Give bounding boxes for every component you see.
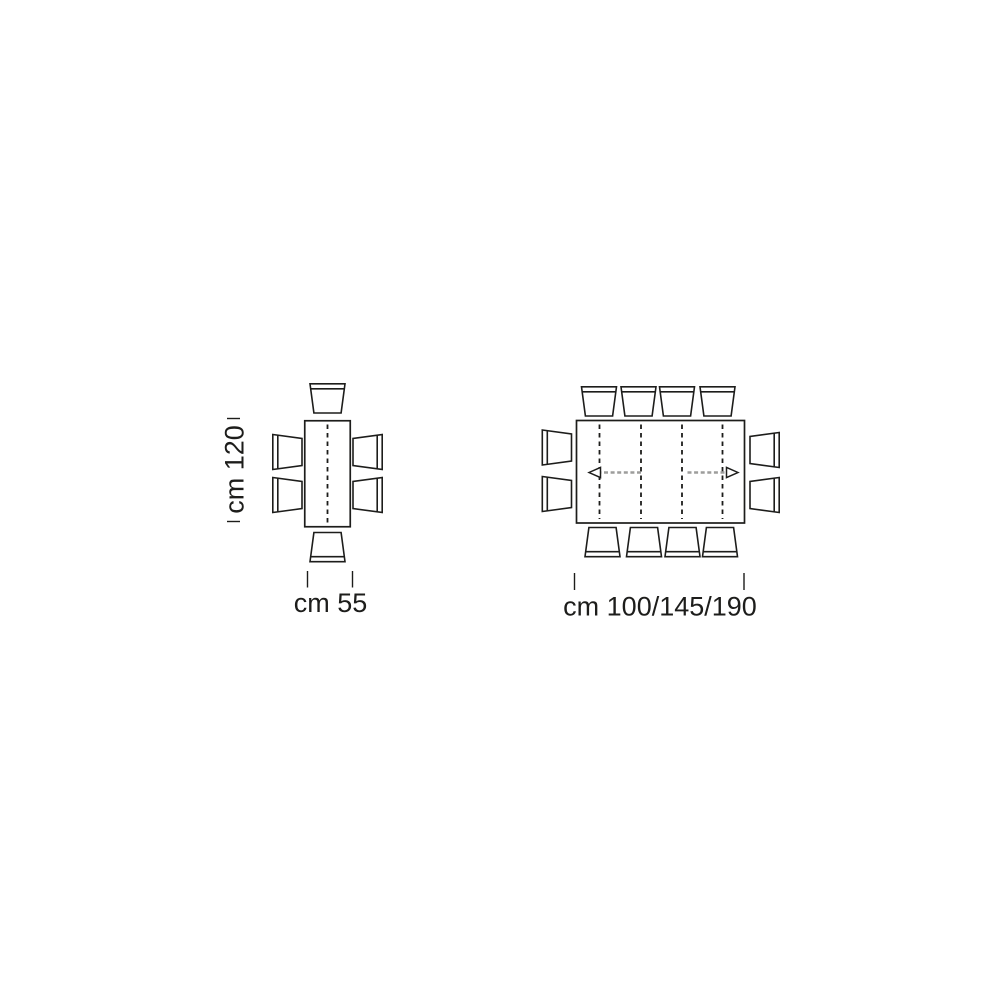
chair-icon: [703, 528, 738, 557]
chair-icon: [273, 478, 302, 513]
chair-icon: [310, 533, 345, 562]
length-dimension-label: cm 120: [220, 425, 250, 514]
chair-icon: [542, 430, 571, 465]
chair-icon: [542, 477, 571, 512]
extension-width-dimension-label: cm 100/145/190: [563, 592, 757, 622]
extendable-table-diagram: cm 100/145/190: [542, 387, 779, 622]
chair-icon: [585, 528, 620, 557]
chair-icon: [310, 384, 345, 413]
chair-icon: [665, 528, 700, 557]
chair-icon: [582, 387, 617, 416]
fixed-table-diagram: cm 120 cm 55: [220, 384, 383, 618]
width-dimension-label: cm 55: [294, 588, 368, 618]
chair-icon: [273, 435, 302, 470]
chair-icon: [750, 478, 779, 513]
chair-icon: [353, 478, 382, 513]
chair-icon: [627, 528, 662, 557]
extendable-table-top: [577, 421, 745, 524]
chair-icon: [700, 387, 735, 416]
technical-drawing-canvas: cm 120 cm 55: [0, 0, 1000, 1000]
chair-icon: [621, 387, 656, 416]
chair-icon: [750, 433, 779, 468]
tables-plan-view-drawing: cm 120 cm 55: [0, 0, 1000, 1000]
chair-icon: [660, 387, 695, 416]
chair-icon: [353, 435, 382, 470]
